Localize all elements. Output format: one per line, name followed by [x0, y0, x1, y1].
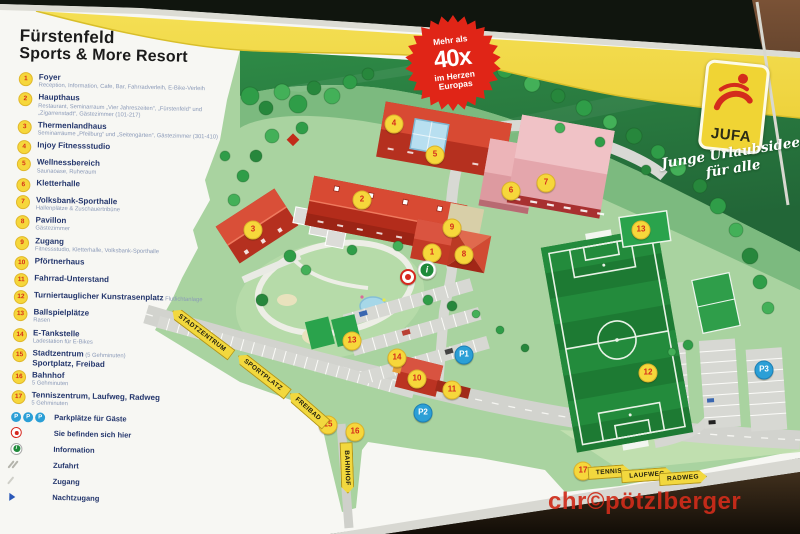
legend-item-sub: Hallenplätze & Zuschauertribüne [36, 205, 120, 214]
legend-item-text: Stadtzentrum (5 Gehminuten)Sportplatz, F… [32, 348, 125, 369]
map-marker-2: 2 [353, 191, 372, 210]
legend-item-text: Fahrrad-Unterstand [34, 274, 109, 290]
legend-item: 17Tenniszentrum, Laufweg, Radweg5 Gehmin… [11, 390, 233, 412]
legend-item-sub: 5 Gehminuten [32, 380, 69, 388]
legend-item-number: 17 [11, 390, 25, 404]
legend-item: 12Turniertauglicher Kunstrasenplatz Flut… [14, 290, 236, 309]
legend-item-text: HaupthausRestaurant, Seminarraum „Vier J… [38, 93, 241, 122]
legend-item-text: Injoy Fitnessstudio [37, 141, 110, 157]
resort-map-sign-photo: Fürstenfeld Sports & More Resort 1FoyerR… [0, 0, 800, 534]
legend-item-text: Kletterhalle [36, 178, 80, 193]
legend-item-number: 9 [15, 236, 29, 250]
legend-item-number: 10 [14, 256, 28, 270]
legend-item-sub: Reception, Information, Cafe, Bar, Fahrr… [39, 83, 205, 94]
legend-symbols: PPPParkplätze für GästeSie befinden sich… [9, 411, 233, 508]
map-marker-14: 14 [388, 349, 407, 368]
photographer-watermark: chr©pötzlberger [548, 488, 741, 516]
legend-item-sub: Rasen [33, 318, 89, 326]
legend-item: 6Kletterhalle [16, 178, 238, 197]
legend-symbol-icon-zufahrt-icon [10, 460, 46, 470]
map-marker-8: 8 [455, 246, 474, 265]
parking-marker-P1: P1 [455, 346, 474, 365]
legend-item: 4Injoy Fitnessstudio [17, 140, 239, 159]
map-marker-11: 11 [443, 381, 462, 400]
legend-item-text: WellnessbereichSaunaoase, Ruheraum [37, 158, 100, 177]
legend-item-number: 5 [17, 157, 31, 171]
legend-item-number: 4 [17, 140, 31, 154]
map-marker-13: 13 [343, 332, 362, 351]
legend-item: 15Stadtzentrum (5 Gehminuten)Sportplatz,… [12, 348, 234, 372]
legend-items: 1FoyerReception, Information, Cafe, Bar,… [11, 72, 241, 413]
legend-item-number: 6 [16, 178, 30, 192]
legend-item-number: 2 [18, 92, 32, 106]
legend-symbol-label: Information [53, 445, 94, 455]
legend-item-sub: Seminarräume „Pfeilburg“ und „Seitengärt… [37, 131, 218, 142]
legend-item-text: Pförtnerhaus [34, 257, 84, 272]
parking-marker-P3: P3 [755, 361, 774, 380]
legend-item: 7Volksbank-SporthalleHallenplätze & Zusc… [16, 195, 238, 217]
legend-symbol-label: Zufahrt [53, 461, 79, 471]
legend-item-text: ZugangFitnessstudio, Kletterhalle, Volks… [35, 236, 159, 256]
direction-banner-sportplatz: SPORTPLATZ [234, 351, 292, 400]
legend-item: 2HaupthausRestaurant, Seminarraum „Vier … [18, 92, 241, 122]
legend-symbol-info: Information [10, 443, 232, 460]
legend-item-number: 7 [16, 195, 30, 209]
jufa-figure-icon [706, 66, 763, 123]
direction-banner-bahnhof: BAHNHOF [340, 442, 355, 494]
legend-item-text: FoyerReception, Information, Cafe, Bar, … [39, 72, 206, 93]
legend-item-text: Turniertauglicher Kunstrasenplatz Flutli… [34, 291, 203, 309]
walk-access-icon [7, 476, 14, 484]
legend-symbol-icon-parking-icon: PPP [11, 412, 47, 423]
legend-item-number: 12 [14, 290, 28, 304]
map-marker-10: 10 [408, 370, 427, 389]
parking-marker-P2: P2 [414, 404, 433, 423]
parking-icon: P [35, 412, 45, 422]
map-marker-5: 5 [426, 146, 445, 165]
legend-item: 8PavillonGästezimmer [15, 215, 237, 237]
legend-symbol-icon-here-icon [11, 427, 47, 439]
legend-symbol-parking: PPPParkplätze für Gäste [11, 411, 233, 428]
legend-symbol-icon-info-icon [10, 443, 46, 456]
legend-item-number: 11 [14, 273, 28, 287]
legend-item-text: Volksbank-SporthalleHallenplätze & Zusch… [36, 195, 120, 214]
legend-item-text: Tenniszentrum, Laufweg, Radweg5 Gehminut… [31, 391, 160, 411]
resort-title: Fürstenfeld Sports & More Resort [19, 26, 242, 68]
legend-symbol-zufahrt: Zufahrt [10, 459, 232, 476]
legend-item-text: E-TankstelleLadestation für E-Bikes [33, 328, 93, 347]
map-marker-13: 13 [632, 221, 651, 240]
legend-item-number: 16 [12, 370, 26, 384]
legend-item-number: 14 [13, 327, 27, 341]
legend-item: 11Fahrrad-Unterstand [14, 273, 236, 292]
legend-item: 9ZugangFitnessstudio, Kletterhalle, Volk… [15, 236, 237, 258]
legend-item-number: 15 [12, 348, 26, 362]
legend-item-sub: 5 Gehminuten [31, 401, 159, 411]
legend-panel: Fürstenfeld Sports & More Resort 1FoyerR… [9, 26, 242, 512]
legend-item-note: Flutlichtanlage [163, 296, 202, 303]
legend-item-note: (5 Gehminuten) [84, 352, 126, 359]
legend-symbol-icon-nachtzugang-icon [9, 493, 45, 502]
legend-symbol-label: Parkplätze für Gäste [54, 413, 127, 424]
map-marker-3: 3 [244, 221, 263, 240]
legend-item-text: BallspielplätzeRasen [33, 308, 89, 327]
information-marker: i [418, 261, 437, 280]
badge-40x: Mehr als 40x im Herzen Europas [398, 8, 507, 117]
legend-item-sub: Restaurant, Seminarraum „Vier Jahreszeit… [38, 103, 240, 122]
resort-title-line2: Sports & More Resort [19, 45, 241, 68]
legend-symbol-here: Sie befinden sich hier [11, 427, 233, 444]
legend-item-label2: Sportplatz, Freibad [32, 358, 125, 369]
information-icon [10, 443, 22, 455]
legend-item-text: Bahnhof5 Gehminuten [32, 370, 69, 388]
legend-item-number: 3 [18, 120, 32, 134]
legend-item: 1FoyerReception, Information, Cafe, Bar,… [19, 72, 241, 94]
parking-icon: P [11, 412, 21, 422]
legend-item-sub: Gästezimmer [35, 226, 70, 234]
legend-item-number: 1 [19, 72, 33, 86]
you-are-here-marker [400, 269, 416, 285]
legend-item-sub: Fitnessstudio, Kletterhalle, Volksbank-S… [35, 246, 159, 256]
legend-item: 10Pförtnerhaus [14, 256, 236, 275]
legend-item-text: PavillonGästezimmer [35, 216, 70, 234]
legend-item-sub: Saunaoase, Ruheraum [37, 168, 100, 177]
legend-symbol-zugang: Zugang [10, 475, 232, 492]
parking-icon: P [23, 412, 33, 422]
legend-item: 3ThermenlandhausSeminarräume „Pfeilburg“… [17, 120, 239, 142]
map-marker-12: 12 [639, 364, 658, 383]
badge-line4: Europas [438, 79, 473, 92]
direction-banner-freibad: FREIBAD [286, 388, 331, 429]
map-marker-4: 4 [385, 115, 404, 134]
legend-symbol-label: Sie befinden sich hier [54, 429, 132, 440]
map-marker-7: 7 [537, 174, 556, 193]
legend-symbol-label: Nachtzugang [52, 493, 99, 503]
legend-symbol-icon-zugang-icon [10, 476, 46, 486]
legend-symbol-nachtzugang: Nachtzugang [9, 491, 231, 508]
you-are-here-icon [11, 427, 22, 438]
legend-item-number: 8 [15, 215, 29, 229]
map-marker-9: 9 [443, 219, 462, 238]
legend-item: 5WellnessbereichSaunaoase, Ruheraum [17, 157, 239, 179]
legend-item-number: 13 [13, 307, 27, 321]
legend-symbol-label: Zugang [53, 477, 80, 487]
night-access-arrow-icon [9, 493, 15, 501]
legend-item-sub: Ladestation für E-Bikes [33, 338, 93, 347]
legend-item-text: ThermenlandhausSeminarräume „Pfeilburg“ … [37, 120, 218, 142]
legend-item: 16Bahnhof5 Gehminuten [12, 370, 234, 392]
map-marker-6: 6 [502, 182, 521, 201]
map-marker-16: 16 [346, 423, 365, 442]
